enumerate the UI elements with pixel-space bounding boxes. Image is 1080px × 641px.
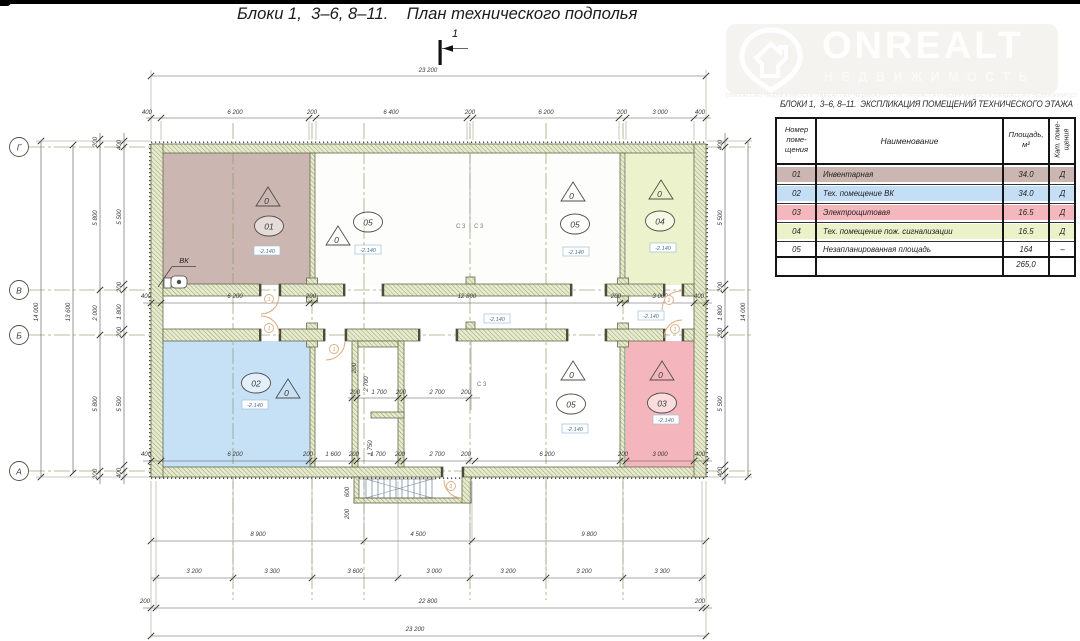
svg-text:С 3: С 3 — [474, 224, 484, 230]
svg-text:-2.140: -2.140 — [247, 403, 264, 409]
svg-text:С 3: С 3 — [456, 224, 466, 230]
svg-text:6 200: 6 200 — [227, 451, 243, 458]
svg-text:1: 1 — [450, 484, 453, 490]
svg-text:Б: Б — [16, 331, 22, 341]
svg-text:400: 400 — [694, 293, 705, 300]
svg-text:1 600: 1 600 — [325, 451, 341, 458]
svg-text:-2.140: -2.140 — [658, 418, 675, 424]
svg-text:200: 200 — [349, 389, 361, 396]
svg-text:1: 1 — [674, 327, 677, 333]
svg-text:200: 200 — [92, 136, 99, 148]
svg-text:2 700: 2 700 — [428, 389, 445, 396]
svg-text:-2.140: -2.140 — [568, 250, 585, 256]
svg-text:05: 05 — [566, 400, 576, 410]
svg-text:200: 200 — [305, 293, 317, 300]
svg-text:200: 200 — [460, 389, 472, 396]
svg-text:-2.140: -2.140 — [489, 317, 506, 323]
svg-text:14 000: 14 000 — [740, 302, 747, 321]
svg-text:9 800: 9 800 — [581, 531, 597, 538]
svg-text:6 200: 6 200 — [538, 109, 554, 116]
svg-text:400: 400 — [141, 451, 152, 458]
svg-text:4 500: 4 500 — [410, 531, 426, 538]
svg-text:200: 200 — [610, 293, 622, 300]
svg-text:200: 200 — [351, 362, 358, 374]
svg-text:3 000: 3 000 — [652, 109, 668, 116]
svg-text:400: 400 — [717, 466, 724, 477]
svg-text:200: 200 — [717, 281, 724, 293]
svg-text:200: 200 — [717, 327, 724, 339]
svg-text:200: 200 — [348, 451, 360, 458]
svg-text:3 000: 3 000 — [652, 451, 668, 458]
svg-text:3 600: 3 600 — [347, 568, 363, 575]
svg-text:5 500: 5 500 — [717, 396, 724, 412]
svg-text:5 500: 5 500 — [116, 209, 123, 225]
svg-text:05: 05 — [570, 220, 580, 230]
svg-text:3 300: 3 300 — [264, 568, 280, 575]
svg-text:0: 0 — [264, 196, 269, 206]
svg-text:5 800: 5 800 — [92, 210, 99, 226]
svg-text:1: 1 — [333, 347, 336, 353]
svg-text:5 500: 5 500 — [116, 396, 123, 412]
svg-text:03: 03 — [657, 399, 667, 409]
svg-text:0: 0 — [569, 191, 574, 201]
svg-text:1 700: 1 700 — [371, 389, 387, 396]
svg-text:400: 400 — [116, 467, 123, 478]
svg-text:200: 200 — [116, 281, 123, 293]
svg-text:1: 1 — [452, 28, 458, 40]
svg-text:1 750: 1 750 — [367, 440, 374, 456]
svg-text:200: 200 — [694, 598, 706, 605]
svg-text:400: 400 — [142, 109, 153, 116]
svg-text:-2.140: -2.140 — [643, 314, 660, 320]
svg-text:0: 0 — [284, 388, 289, 398]
svg-text:400: 400 — [695, 109, 706, 116]
svg-text:05: 05 — [363, 218, 373, 228]
svg-text:6 400: 6 400 — [383, 109, 399, 116]
svg-text:3 000: 3 000 — [426, 568, 442, 575]
svg-text:01: 01 — [264, 222, 274, 232]
svg-text:200: 200 — [116, 326, 123, 338]
svg-text:2 700: 2 700 — [428, 451, 445, 458]
svg-text:-2.140: -2.140 — [567, 427, 584, 433]
svg-text:5 800: 5 800 — [92, 396, 99, 412]
svg-text:1 800: 1 800 — [717, 305, 724, 321]
svg-text:0: 0 — [569, 370, 574, 380]
svg-text:200: 200 — [302, 451, 314, 458]
svg-text:3 300: 3 300 — [654, 568, 670, 575]
svg-text:3 200: 3 200 — [576, 568, 592, 575]
svg-text:600: 600 — [344, 486, 351, 497]
svg-text:200: 200 — [460, 451, 472, 458]
svg-text:6 200: 6 200 — [227, 109, 243, 116]
svg-text:13 600: 13 600 — [65, 302, 72, 321]
svg-text:04: 04 — [655, 217, 665, 227]
svg-text:0: 0 — [658, 370, 663, 380]
svg-text:-2.140: -2.140 — [259, 249, 276, 255]
svg-text:200: 200 — [92, 468, 99, 480]
svg-text:2 700: 2 700 — [363, 376, 370, 393]
svg-text:С 3: С 3 — [477, 382, 487, 388]
svg-text:В: В — [16, 286, 22, 296]
svg-text:200: 200 — [139, 598, 151, 605]
svg-text:А: А — [15, 467, 22, 477]
svg-text:ВК: ВК — [179, 256, 189, 265]
svg-text:2 000: 2 000 — [92, 305, 99, 322]
svg-text:3 200: 3 200 — [500, 568, 516, 575]
svg-text:200: 200 — [344, 508, 351, 520]
svg-text:5 500: 5 500 — [717, 210, 724, 226]
svg-text:23 200: 23 200 — [418, 67, 438, 74]
svg-text:2: 2 — [667, 298, 671, 304]
svg-text:0: 0 — [334, 235, 339, 245]
svg-text:200: 200 — [306, 109, 318, 116]
svg-text:1: 1 — [268, 297, 271, 303]
svg-text:6 200: 6 200 — [227, 293, 243, 300]
svg-text:400: 400 — [695, 451, 706, 458]
svg-text:23 200: 23 200 — [405, 626, 425, 633]
svg-text:200: 200 — [616, 109, 628, 116]
svg-text:02: 02 — [251, 379, 261, 389]
svg-text:6 200: 6 200 — [539, 451, 555, 458]
svg-text:-2.140: -2.140 — [655, 246, 672, 252]
svg-text:200: 200 — [617, 451, 629, 458]
svg-text:400: 400 — [141, 293, 152, 300]
svg-text:8 900: 8 900 — [250, 531, 266, 538]
svg-text:200: 200 — [394, 451, 406, 458]
svg-text:200: 200 — [464, 109, 476, 116]
svg-text:3 200: 3 200 — [186, 568, 202, 575]
svg-text:22 800: 22 800 — [418, 598, 438, 605]
svg-text:0: 0 — [657, 189, 662, 199]
svg-text:-2.140: -2.140 — [360, 248, 377, 254]
svg-text:1: 1 — [268, 326, 271, 332]
svg-text:200: 200 — [395, 389, 407, 396]
svg-text:1 800: 1 800 — [116, 304, 123, 320]
svg-text:12 800: 12 800 — [458, 293, 477, 300]
svg-text:14 000: 14 000 — [33, 302, 40, 321]
